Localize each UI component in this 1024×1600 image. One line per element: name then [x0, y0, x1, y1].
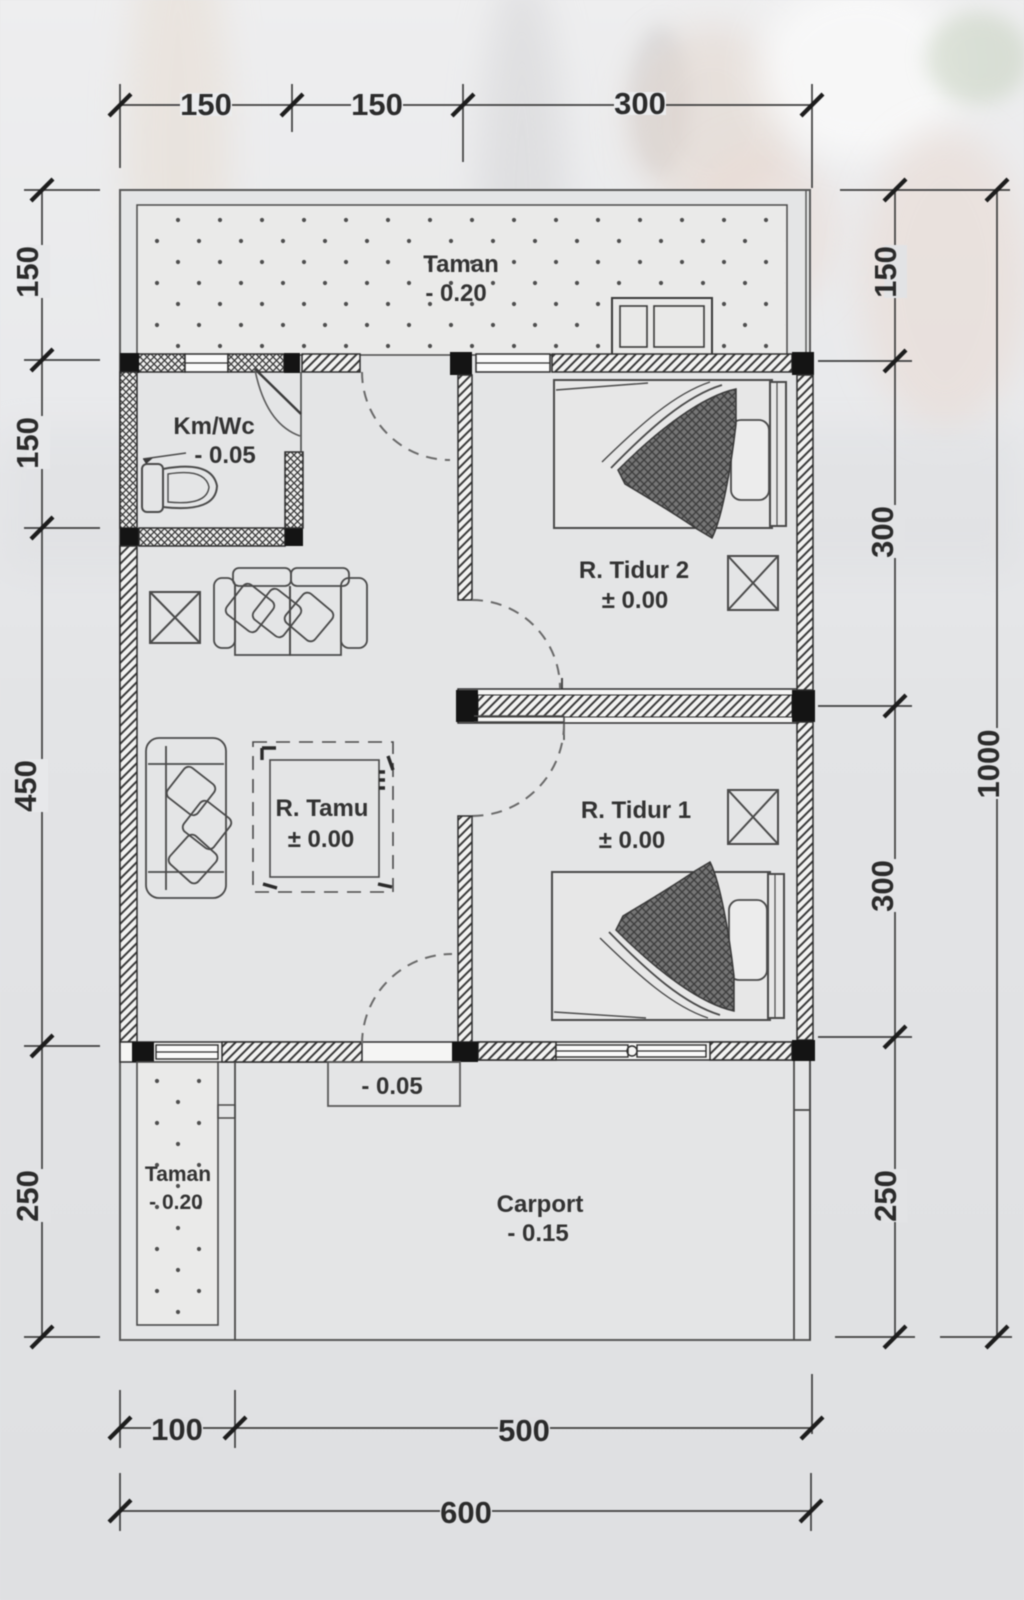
svg-text:R. Tamu: R. Tamu	[276, 795, 369, 822]
svg-text:R. Tidur 2: R. Tidur 2	[579, 557, 689, 584]
svg-text:- 0.05: - 0.05	[194, 442, 255, 469]
svg-text:150: 150	[10, 417, 45, 469]
svg-text:- 0.20: - 0.20	[149, 1191, 203, 1214]
svg-text:600: 600	[440, 1495, 492, 1530]
svg-text:500: 500	[498, 1413, 550, 1448]
svg-text:Carport: Carport	[497, 1191, 584, 1218]
svg-text:Taman: Taman	[423, 251, 499, 278]
svg-text:300: 300	[865, 506, 900, 558]
svg-text:250: 250	[10, 1170, 45, 1222]
svg-text:450: 450	[8, 760, 43, 812]
svg-text:- 0.15: - 0.15	[507, 1220, 568, 1247]
svg-text:250: 250	[868, 1170, 903, 1222]
svg-text:150: 150	[351, 87, 403, 122]
svg-text:Km/Wc: Km/Wc	[173, 413, 254, 440]
svg-text:150: 150	[868, 246, 903, 298]
svg-text:1000: 1000	[971, 730, 1006, 799]
svg-text:± 0.00: ± 0.00	[288, 826, 355, 853]
svg-text:- 0.05: - 0.05	[361, 1073, 422, 1100]
svg-text:150: 150	[10, 246, 45, 298]
svg-text:Taman: Taman	[145, 1163, 211, 1186]
svg-text:R. Tidur 1: R. Tidur 1	[581, 797, 691, 824]
svg-text:± 0.00: ± 0.00	[602, 587, 669, 614]
svg-text:300: 300	[614, 86, 666, 121]
svg-text:100: 100	[151, 1412, 203, 1447]
svg-text:- 0.20: - 0.20	[425, 280, 486, 307]
svg-text:± 0.00: ± 0.00	[599, 827, 666, 854]
svg-text:150: 150	[180, 87, 232, 122]
svg-text:300: 300	[865, 860, 900, 912]
